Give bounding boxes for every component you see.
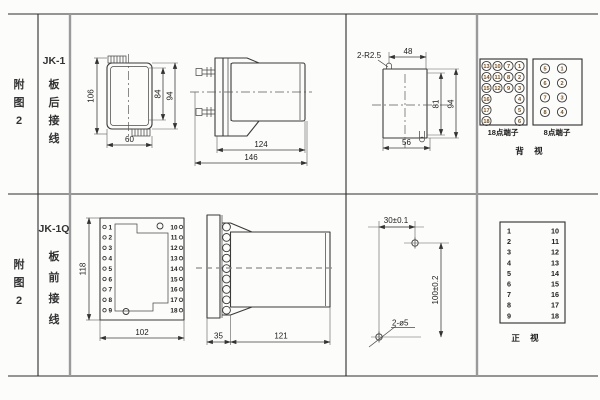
terminal-number: 14 — [170, 266, 178, 273]
terminal-bump — [223, 286, 231, 294]
dim-146: 146 — [244, 153, 258, 162]
terminal-number: 1 — [518, 64, 521, 70]
dim-102: 102 — [135, 328, 149, 337]
terminal-dot — [103, 257, 106, 260]
terminal-dot — [103, 236, 106, 239]
terminal-number: 13 — [483, 64, 489, 70]
front-terminal-number: 9 — [507, 311, 511, 320]
terminal-number: 8 — [507, 75, 510, 81]
terminal-bump — [223, 296, 231, 304]
terminal-box-8: 51627384 — [540, 64, 566, 117]
terminal-number: 11 — [171, 235, 178, 242]
front-terminal-number: 5 — [507, 269, 511, 278]
terminal-dot — [179, 257, 182, 260]
drilling-template: 30±0.1 2-ø5 100±0.2 — [368, 216, 449, 347]
terminal-box-18: 131071141182151293164175186 — [482, 61, 524, 125]
terminal-dot — [103, 225, 106, 228]
terminal-number: 1 — [560, 67, 563, 73]
terminal-number: 11 — [495, 75, 501, 81]
jk1q-front-view: 123456789101112131415161718 118 102 — [79, 218, 185, 341]
caption-back-view: 背 视 — [515, 146, 546, 156]
terminal-bump — [223, 244, 231, 252]
front-terminal-number: 1 — [507, 227, 511, 236]
dim-35: 35 — [214, 332, 223, 341]
mounting-stud-top — [196, 67, 215, 77]
dim-124: 124 — [254, 140, 268, 149]
terminal-number: 9 — [507, 86, 510, 92]
terminal-dot — [179, 246, 182, 249]
caption-front-view: 正 视 — [511, 333, 542, 343]
terminal-number: 6 — [518, 119, 521, 125]
front-terminal-number: 7 — [507, 290, 511, 299]
terminal-number: 4 — [109, 256, 113, 263]
label-slot-radius: 2-R2.5 — [357, 51, 382, 60]
dim-100: 100±0.2 — [431, 275, 440, 304]
jk1-front-view: 106 84 94 60 — [87, 54, 179, 148]
terminal-number: 5 — [109, 266, 113, 273]
dim-106: 106 — [87, 89, 96, 103]
front-terminal-number: 10 — [551, 227, 559, 236]
terminal-dot — [179, 225, 182, 228]
terminal-number: 10 — [494, 64, 500, 70]
figure-label-row1: 附图2 — [14, 77, 25, 127]
terminal-dot — [103, 267, 106, 270]
terminal-dot — [179, 288, 182, 291]
terminal-number: 2 — [560, 81, 563, 87]
front-terminal-table: 123456789101112131415161718 — [507, 227, 559, 321]
mounting-stud-bottom — [196, 107, 215, 117]
terminal-number: 2 — [518, 75, 521, 81]
terminal-number: 3 — [518, 86, 521, 92]
terminal-number: 4 — [518, 97, 522, 103]
terminal-dot — [103, 298, 106, 301]
terminal-number: 9 — [109, 308, 113, 315]
terminal-number: 17 — [483, 108, 489, 114]
dim-48: 48 — [404, 47, 413, 56]
front-terminal-number: 18 — [551, 311, 559, 320]
terminal-number: 18 — [170, 308, 178, 315]
terminal-number: 10 — [170, 224, 178, 231]
terminal-bump — [223, 223, 231, 231]
front-terminal-number: 8 — [507, 301, 511, 310]
terminal-bump — [223, 254, 231, 262]
terminal-bump — [223, 234, 231, 242]
terminal-number: 7 — [507, 64, 510, 70]
dim-84: 84 — [154, 89, 163, 98]
terminal-number: 7 — [543, 96, 546, 102]
terminal-dot — [179, 267, 182, 270]
label-8pt: 8点端子 — [544, 127, 571, 137]
terminal-number: 1 — [109, 224, 113, 231]
dim-30: 30±0.1 — [384, 216, 409, 225]
jk1-side-view: 124 146 — [190, 58, 312, 166]
front-terminal-number: 16 — [551, 290, 559, 299]
terminal-number: 6 — [543, 81, 546, 87]
dim-121: 121 — [274, 332, 288, 341]
terminal-number: 5 — [543, 67, 546, 73]
terminal-number: 3 — [560, 96, 563, 102]
terminal-number: 8 — [543, 110, 546, 116]
terminal-number: 5 — [518, 108, 521, 114]
model-label-jk1q: JK-1Q — [39, 223, 70, 235]
front-terminal-number: 3 — [507, 248, 511, 257]
terminal-number: 3 — [109, 245, 113, 252]
front-terminal-number: 12 — [551, 248, 559, 257]
dimension-drawing-svg: 附图2 JK-1 板后接线 106 84 94 60 — [0, 0, 600, 400]
terminal-number: 13 — [170, 256, 178, 263]
terminal-number: 18 — [483, 119, 489, 125]
terminal-dot — [179, 309, 182, 312]
model-label-jk1: JK-1 — [43, 55, 66, 67]
dim-118: 118 — [79, 262, 88, 275]
front-terminal-number: 6 — [507, 280, 511, 289]
wiring-label-row1: 板后接线 — [49, 77, 61, 145]
terminal-dot — [103, 246, 106, 249]
dim-60: 60 — [125, 135, 134, 144]
terminal-number: 12 — [170, 245, 178, 252]
label-18pt: 18点端子 — [488, 127, 519, 137]
dim-94b: 94 — [447, 99, 456, 108]
front-terminal-number: 2 — [507, 237, 511, 246]
figure-sheet: 附图2 JK-1 板后接线 106 84 94 60 — [0, 0, 600, 400]
terminal-number: 4 — [560, 110, 564, 116]
row2-labels: 附图2 JK-1Q 板前接线 — [14, 223, 70, 326]
terminal-number: 16 — [170, 287, 178, 294]
dim-56: 56 — [402, 138, 411, 147]
terminal-number: 17 — [170, 297, 178, 304]
front-terminal-number: 14 — [551, 269, 559, 278]
terminal-number: 6 — [109, 276, 113, 283]
jk1q-side-view: 35 121 — [196, 215, 336, 345]
terminal-number: 8 — [109, 297, 113, 304]
terminal-number: 15 — [483, 86, 489, 92]
front-terminal-number: 13 — [551, 258, 559, 267]
front-view-terminals: 123456789101112131415161718 正 视 — [500, 222, 565, 343]
back-view-terminals: 131071141182151293164175186 18点端子 516273… — [480, 59, 582, 156]
front-terminal-number: 11 — [551, 237, 559, 246]
terminal-bump — [223, 275, 231, 283]
dim-81: 81 — [432, 99, 441, 108]
terminal-number: 16 — [483, 97, 489, 103]
terminal-number: 15 — [170, 276, 178, 283]
dim-2phi5: 2-ø5 — [392, 319, 409, 328]
terminal-dot — [179, 236, 182, 239]
terminal-dot — [179, 277, 182, 280]
terminal-number: 12 — [494, 86, 500, 92]
terminal-number: 14 — [483, 75, 490, 81]
jk1-panel-cutout: 2-R2.5 48 81 94 56 — [357, 47, 459, 151]
terminal-dot — [179, 298, 182, 301]
terminal-number: 7 — [109, 287, 113, 294]
terminal-number: 2 — [109, 235, 113, 242]
row1-labels: 附图2 JK-1 板后接线 — [14, 55, 66, 145]
terminal-dot — [103, 288, 106, 291]
terminal-bump — [223, 306, 231, 314]
dim-94: 94 — [166, 91, 175, 100]
front-terminal-number: 17 — [551, 301, 559, 310]
front-terminal-number: 4 — [507, 258, 511, 267]
terminal-dot — [103, 309, 106, 312]
wiring-label-row2: 板前接线 — [49, 249, 61, 326]
figure-label-row2: 附图2 — [14, 257, 25, 307]
front-terminal-number: 15 — [551, 280, 559, 289]
terminal-dot — [103, 277, 106, 280]
